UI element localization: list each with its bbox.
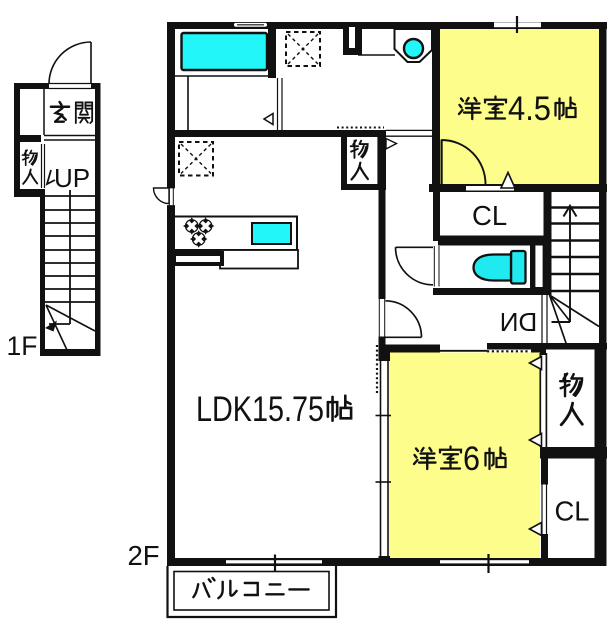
svg-text:LDK15.75: LDK15.75 (196, 390, 324, 429)
svg-text:UP: UP (54, 163, 90, 193)
svg-text:1F: 1F (7, 331, 38, 361)
svg-text:CL: CL (472, 200, 507, 231)
svg-text:6: 6 (463, 440, 480, 478)
svg-text:DN: DN (500, 307, 538, 337)
svg-text:CL: CL (555, 496, 590, 527)
svg-text:2F: 2F (128, 540, 160, 571)
svg-text:4.5: 4.5 (508, 90, 551, 128)
